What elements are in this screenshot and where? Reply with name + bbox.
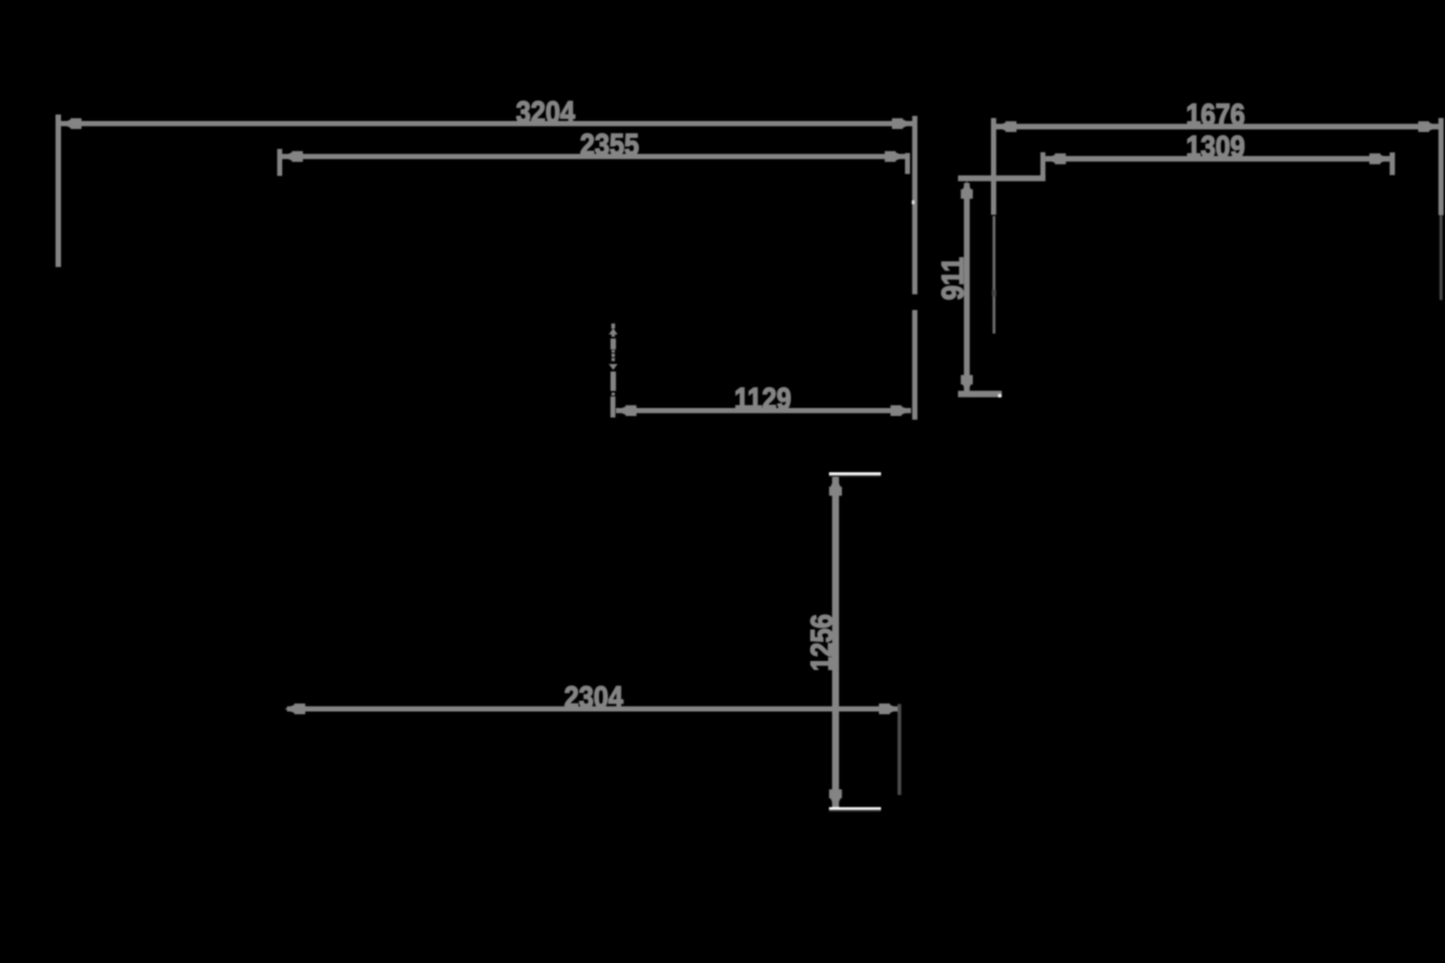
svg-text:3204: 3204 (516, 95, 576, 130)
svg-text:1256: 1256 (804, 614, 839, 671)
svg-text:1309: 1309 (1186, 129, 1245, 164)
svg-text:2355: 2355 (580, 127, 639, 162)
svg-text:2304: 2304 (564, 680, 624, 715)
svg-text:911: 911 (935, 257, 970, 300)
svg-text:1676: 1676 (1186, 97, 1245, 132)
svg-text:1129: 1129 (734, 381, 791, 416)
